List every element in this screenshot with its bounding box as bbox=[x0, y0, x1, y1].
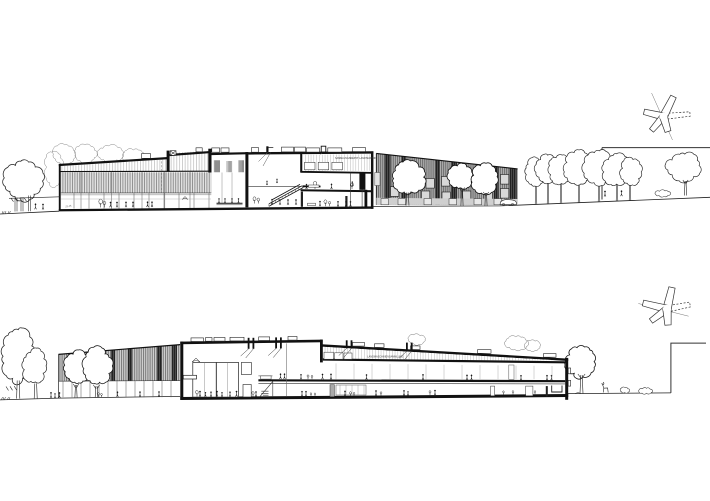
svg-text:SAMMLUNGSDEPOT LANDTECHNIK: SAMMLUNGSDEPOT LANDTECHNIK bbox=[335, 157, 377, 160]
svg-text:LANDMASCHINENSAMMLUNG: LANDMASCHINENSAMMLUNG bbox=[367, 355, 403, 358]
